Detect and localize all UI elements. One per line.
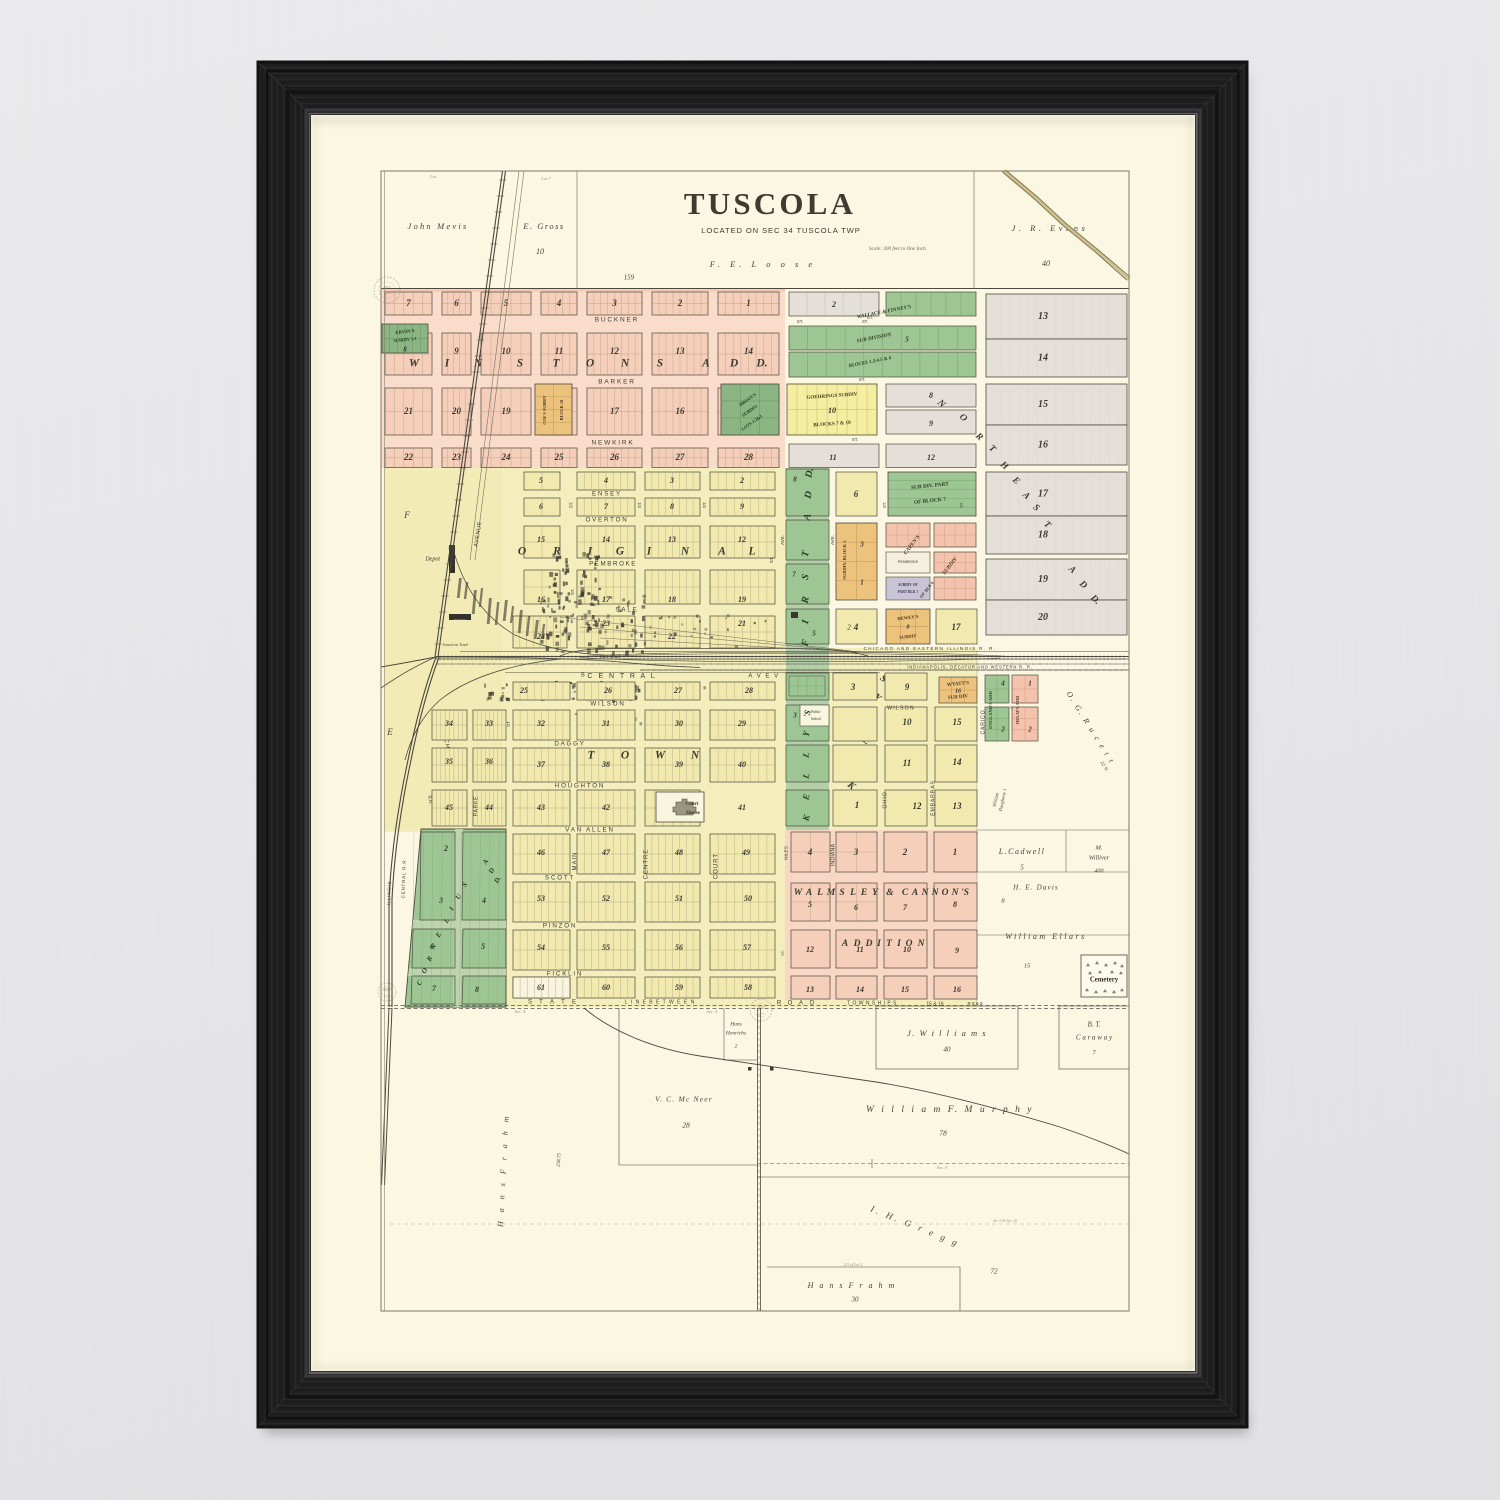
svg-text:30: 30 [851,1296,860,1304]
svg-text:5: 5 [539,476,543,485]
svg-text:16: 16 [953,985,961,994]
svg-text:OVERTON: OVERTON [586,517,629,524]
svg-text:R 8 & 9: R 8 & 9 [967,1001,983,1006]
svg-text:School: School [811,717,821,721]
svg-text:O: O [906,939,913,949]
svg-text:S: S [517,358,523,370]
svg-text:61: 61 [537,983,545,992]
svg-text:28: 28 [682,1121,690,1130]
svg-text:MAIN: MAIN [573,852,579,871]
svg-text:PEMBROKE: PEMBROKE [898,560,919,564]
svg-text:BUCKNER: BUCKNER [595,317,639,324]
svg-text:16: 16 [676,406,686,416]
svg-text:5: 5 [905,336,909,344]
svg-text:S: S [528,1000,532,1006]
svg-text:C: C [902,888,909,898]
svg-text:14: 14 [953,757,963,767]
svg-text:2: 2 [735,1043,738,1049]
svg-text:SUBDIV OF: SUBDIV OF [898,583,918,587]
svg-text:N: N [917,939,926,949]
svg-text:INDIANA: INDIANA [830,844,836,867]
svg-text:L: L [816,888,823,898]
svg-text:Hans: Hans [729,1021,742,1027]
svg-text:Sec 9 & Sec 10: Sec 9 & Sec 10 [993,1218,1017,1223]
svg-text:L.Cadwell: L.Cadwell [998,847,1046,856]
svg-text:I: I [876,939,881,949]
svg-text:44: 44 [484,803,493,812]
svg-text:ST: ST [506,721,511,727]
svg-text:46: 46 [536,848,545,857]
svg-text:ST.: ST. [959,502,964,508]
svg-text:FICKLIN: FICKLIN [547,971,583,978]
svg-text:W: W [409,358,420,370]
svg-text:House: House [686,810,701,816]
svg-text:ST.: ST. [797,319,804,324]
svg-text:36: 36 [484,757,493,766]
svg-text:15: 15 [1038,399,1048,410]
svg-text:32: 32 [536,719,545,728]
svg-text:ST.: ST. [569,502,574,509]
svg-text:4: 4 [556,298,562,308]
svg-text:2: 2 [1027,726,1032,734]
svg-text:Sec. 4: Sec. 4 [707,1009,718,1014]
svg-text:12: 12 [738,535,746,544]
svg-text:N: N [690,750,700,762]
svg-text:11: 11 [903,758,912,768]
svg-text:53: 53 [537,894,545,903]
svg-text:I: I [646,546,652,558]
svg-text:A: A [805,888,812,898]
svg-text:2: 2 [677,298,683,308]
svg-text:W: W [655,750,666,762]
svg-text:A: A [717,546,726,558]
svg-text:9: 9 [955,946,959,955]
svg-text:11: 11 [555,346,564,356]
svg-text:N: N [931,888,940,898]
svg-text:23: 23 [451,452,462,462]
svg-text:D: D [853,939,861,949]
svg-text:S: S [839,888,844,898]
svg-text:18: 18 [1038,529,1048,540]
svg-text:8: 8 [670,502,674,511]
svg-text:E: E [572,1000,576,1006]
svg-text:CHICAGO AND EASTERN ILLINOI: CHICAGO AND EASTERN ILLINOIS R. R. [864,646,997,651]
svg-text:21: 21 [737,619,746,628]
svg-text:INDIANAPOLIS, DECATUR AND WE: INDIANAPOLIS, DECATUR AND WESTERN R. R. [907,665,1032,670]
svg-text:Scale: 300 feet to One Inch.: Scale: 300 feet to One Inch. [869,245,927,252]
svg-text:35: 35 [444,757,453,766]
svg-text:PINZON: PINZON [543,923,577,930]
svg-text:NILES: NILES [783,846,789,860]
svg-text:ILLINOIS: ILLINOIS [386,880,392,905]
svg-text:40: 40 [737,760,746,769]
svg-text:4: 4 [481,896,486,905]
svg-text:N: N [680,546,690,558]
svg-text:A: A [911,888,918,898]
svg-text:D: D [810,1001,815,1007]
svg-text:26: 26 [603,686,612,695]
svg-text:6: 6 [539,502,543,511]
svg-text:19: 19 [502,406,512,416]
svg-text:12: 12 [610,346,620,356]
svg-text:4: 4 [853,622,859,632]
svg-text:Kingston: Kingston [454,618,466,622]
svg-text:8: 8 [929,391,933,400]
svg-text:Lot 7: Lot 7 [540,176,551,181]
svg-text:T: T [539,1000,543,1006]
svg-text:O: O [621,750,629,762]
svg-text:56: 56 [675,943,683,952]
svg-text:D.: D. [803,467,816,480]
svg-text:28: 28 [743,452,754,462]
svg-text:16: 16 [1038,439,1048,450]
svg-text:33: 33 [484,719,493,728]
svg-text:T O W N S H I P S: T O W N S H I P S [847,1000,897,1006]
svg-text:Sec. 9: Sec. 9 [937,1165,948,1170]
svg-text:2: 2 [739,476,744,485]
svg-text:29: 29 [737,719,746,728]
svg-text:38: 38 [601,760,610,769]
svg-text:D: D [729,358,739,370]
svg-text:ENGLAND'S ADD: ENGLAND'S ADD [988,690,993,728]
svg-text:COE'S SUBDIV: COE'S SUBDIV [542,395,547,424]
svg-text:SCOTT: SCOTT [545,875,575,882]
svg-text:48: 48 [674,848,683,857]
svg-text:400: 400 [1095,867,1104,874]
svg-text:R: R [777,1001,782,1007]
svg-text:E: E [386,727,393,737]
svg-text:E. Gross: E. Gross [522,221,564,231]
svg-text:54: 54 [537,943,545,952]
svg-text:HOUGHTON: HOUGHTON [555,783,605,790]
svg-text:NEWKIRK: NEWKIRK [592,440,635,447]
svg-text:31: 31 [601,719,610,728]
svg-text:27: 27 [673,686,683,695]
svg-text:ST.: ST. [769,557,774,564]
svg-text:9: 9 [454,346,459,356]
svg-text:A: A [550,1000,554,1006]
svg-text:27: 27 [675,452,686,462]
svg-text:O: O [518,546,526,558]
svg-text:ST.: ST. [780,950,785,956]
svg-text:C E N T R A L: C E N T R A L [587,673,656,680]
svg-text:F: F [403,510,410,520]
svg-text:22=4: 22=4 [758,1011,765,1015]
svg-text:3: 3 [438,896,443,905]
svg-text:E: E [860,888,867,898]
svg-text:3: 3 [850,682,856,692]
svg-text:'S: 'S [961,888,969,898]
svg-text:A: A [841,939,848,949]
svg-text:Depot: Depot [424,556,440,562]
svg-text:Lot: Lot [429,174,437,179]
svg-text:I: I [444,358,450,370]
svg-text:T: T [552,358,560,370]
svg-text:F. E. L o o s e: F. E. L o o s e [709,259,816,269]
svg-text:10: 10 [903,717,913,727]
svg-text:17: 17 [952,622,962,632]
svg-text:2/3 of Lot 2: 2/3 of Lot 2 [844,1262,863,1267]
svg-text:19: 19 [1038,574,1048,585]
svg-text:42: 42 [601,803,610,812]
svg-text:H a n s F r a h m: H a n s F r a h m [807,1281,897,1290]
svg-text:57: 57 [743,943,752,952]
svg-text:AVE.: AVE. [780,535,785,545]
svg-text:78: 78 [939,1129,947,1138]
svg-text:19: 19 [738,595,746,604]
svg-text:Junction Yard: Junction Yard [442,642,468,647]
svg-text:41: 41 [737,803,746,812]
svg-text:45: 45 [444,803,453,812]
svg-text:49: 49 [741,848,750,857]
svg-text:1: 1 [1028,680,1032,688]
svg-text:LOCATED ON SEC 34 TUSCOLA TWP: LOCATED ON SEC 34 TUSCOLA TWP [701,226,860,235]
svg-text:ST.: ST. [702,502,707,509]
svg-text:2027: 2027 [757,1005,765,1010]
svg-text:M.: M. [1094,844,1102,851]
svg-text:I: I [896,939,901,949]
svg-text:6: 6 [854,903,858,912]
svg-text:5: 5 [808,900,812,909]
svg-text:4: 4 [603,476,608,485]
svg-text:9: 9 [929,419,933,428]
svg-text:ST.: ST. [637,502,642,509]
svg-text:7: 7 [792,571,796,579]
svg-text:OHIO: OHIO [882,791,888,808]
svg-text:D: D [865,939,873,949]
svg-text:13: 13 [676,346,686,356]
svg-text:D.: D. [755,358,767,370]
svg-text:8: 8 [403,346,407,354]
svg-text:2027: 2027 [383,987,391,992]
svg-text:Sec. 4: Sec. 4 [515,1009,526,1014]
svg-text:3: 3 [611,298,617,308]
svg-text:WILSON: WILSON [887,705,915,711]
svg-text:15: 15 [953,717,963,727]
svg-text:M: M [826,888,836,898]
svg-text:2: 2 [443,844,448,853]
svg-text:13: 13 [668,535,676,544]
svg-text:59: 59 [675,983,683,992]
svg-text:ST.: ST. [862,319,868,324]
svg-text:A V E V: A V E V [748,674,779,680]
svg-text:BLOCK 18: BLOCK 18 [559,400,564,420]
svg-text:11: 11 [829,453,837,462]
svg-text:1: 1 [860,579,864,587]
svg-text:12: 12 [913,801,923,811]
svg-text:ST.: ST. [859,377,866,382]
svg-text:SUBDIV. BLOCK 5: SUBDIV. BLOCK 5 [842,540,847,580]
svg-text:L: L [747,546,755,558]
svg-text:W i l l i a m F. M u r p h: W i l l i a m F. M u r p h y [866,1105,1034,1115]
svg-text:T: T [561,1000,565,1006]
svg-text:21: 21 [403,406,413,416]
svg-text:O: O [586,358,594,370]
svg-text:60: 60 [602,983,610,992]
svg-text:DAGGY: DAGGY [554,741,585,748]
svg-text:V. C. Mc Neer: V. C. Mc Neer [655,1095,713,1104]
svg-text:159: 159 [624,274,635,282]
svg-text:1: 1 [746,298,751,308]
svg-text:51: 51 [675,894,683,903]
svg-text:50: 50 [744,894,752,903]
svg-text:ST.: ST. [852,437,859,442]
svg-text:B. T.: B. T. [1088,1021,1101,1029]
svg-text:13: 13 [953,801,963,811]
svg-text:3: 3 [792,712,797,720]
svg-text:30: 30 [674,719,683,728]
svg-text:12: 12 [927,453,935,462]
svg-text:25: 25 [554,452,565,462]
svg-text:2: 2 [831,300,836,309]
svg-text:12: 12 [806,945,814,954]
svg-text:PEMBROKE: PEMBROKE [589,561,637,568]
svg-text:26: 26 [609,452,620,462]
svg-text:J. W i l l i a m s: J. W i l l i a m s [907,1028,987,1038]
svg-text:N: N [921,888,930,898]
svg-text:HELM'S ADD: HELM'S ADD [1015,695,1020,724]
svg-text:N: N [620,358,630,370]
svg-text:52: 52 [602,894,610,903]
svg-text:L I N E B E T W E E N: L I N E B E T W E E N [625,999,695,1005]
svg-text:VAN ALLEN: VAN ALLEN [565,827,614,834]
svg-text:John Mevis: John Mevis [408,221,469,231]
svg-text:14: 14 [744,346,754,356]
svg-text:G: G [616,546,625,558]
svg-text:14: 14 [602,535,610,544]
svg-text:16: 16 [955,688,961,694]
svg-text:6: 6 [454,298,459,308]
svg-text:A: A [799,1001,803,1007]
svg-text:15 & 16: 15 & 16 [926,1001,943,1007]
svg-text:14: 14 [1038,352,1048,363]
svg-text:Cemetery: Cemetery [1090,977,1119,984]
svg-text:10: 10 [502,346,512,356]
svg-text:15: 15 [1024,962,1031,969]
svg-text:COURT: COURT [714,853,720,879]
svg-text:2: 2 [847,624,851,632]
svg-text:8: 8 [953,900,957,909]
svg-text:2027: 2027 [383,285,391,290]
svg-text:5: 5 [1020,864,1024,872]
svg-text:24: 24 [501,452,512,462]
svg-text:18: 18 [668,595,676,604]
svg-text:PART BLK 7: PART BLK 7 [898,590,919,594]
svg-text:&: & [886,888,894,898]
svg-text:EMBARRAS: EMBARRAS [930,780,936,816]
svg-text:7: 7 [406,298,411,308]
svg-text:Williver: Williver [1089,854,1110,861]
svg-text:8: 8 [475,985,479,994]
svg-text:25: 25 [519,686,528,695]
svg-text:Henrichs: Henrichs [725,1030,746,1036]
svg-text:17: 17 [610,406,620,416]
svg-text:3: 3 [859,541,864,549]
svg-text:O: O [788,1001,793,1007]
svg-text:TUSCOLA: TUSCOLA [684,186,856,221]
svg-text:BARKER: BARKER [598,379,636,386]
svg-text:William Ellars: William Ellars [1005,932,1086,941]
svg-text:ENSEY: ENSEY [592,491,622,498]
svg-text:13: 13 [1038,311,1048,322]
svg-text:72: 72 [991,1268,999,1276]
svg-text:O: O [942,888,949,898]
svg-text:13: 13 [806,985,814,994]
svg-text:4: 4 [1000,680,1005,688]
svg-text:2: 2 [902,847,908,857]
svg-text:14: 14 [856,985,864,994]
svg-text:20: 20 [1037,612,1048,623]
svg-text:H. E. Davis: H. E. Davis [1012,884,1059,892]
svg-text:37: 37 [536,760,546,769]
svg-text:N: N [951,888,960,898]
svg-text:L: L [849,888,856,898]
svg-text:47: 47 [601,848,611,857]
svg-text:17: 17 [1038,488,1049,499]
svg-text:Rail Road: Rail Road [599,655,621,660]
svg-text:PARKE: PARKE [473,796,479,817]
svg-text:B: B [581,672,585,678]
svg-text:WILSON: WILSON [590,701,625,708]
svg-text:22: 22 [403,452,414,462]
svg-text:2: 2 [1000,726,1005,734]
svg-text:15: 15 [901,985,909,994]
svg-text:4: 4 [807,847,813,857]
svg-text:9: 9 [740,502,744,511]
svg-text:1: 1 [855,800,860,810]
svg-text:10: 10 [828,406,836,415]
svg-text:3: 3 [853,847,859,857]
svg-text:W: W [794,888,803,898]
svg-text:5: 5 [481,942,485,951]
svg-text:58: 58 [744,983,752,992]
svg-text:T: T [587,750,595,762]
svg-text:CENTRE: CENTRE [644,849,650,880]
svg-text:S: S [657,358,663,370]
svg-text:ST.: ST. [882,502,887,508]
svg-text:9: 9 [905,682,910,692]
svg-text:8: 8 [907,624,910,630]
svg-text:C a r a w a y: C a r a w a y [1076,1034,1113,1042]
svg-text:15: 15 [537,535,545,544]
svg-text:28: 28 [744,686,753,695]
svg-text:5: 5 [812,630,816,638]
svg-text:55: 55 [602,943,610,952]
svg-text:1: 1 [953,847,958,857]
svg-text:43: 43 [536,803,545,812]
svg-text:3: 3 [669,476,674,485]
svg-text:40: 40 [944,1046,952,1054]
svg-text:6: 6 [854,489,859,499]
svg-text:10: 10 [536,247,544,256]
svg-text:A: A [701,358,710,370]
svg-text:8: 8 [793,476,797,484]
svg-text:AVE.: AVE. [830,535,835,545]
svg-text:ST.: ST. [570,589,575,596]
svg-text:34: 34 [444,719,453,728]
svg-text:20: 20 [451,406,462,416]
svg-text:39: 39 [674,760,683,769]
svg-text:40: 40 [1042,259,1050,268]
svg-text:Court: Court [685,801,699,807]
